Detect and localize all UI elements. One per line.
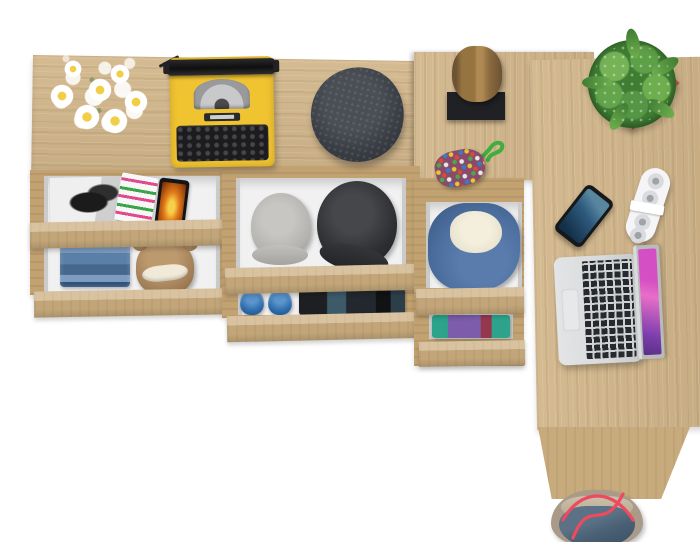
middle-drawer-2-front — [227, 312, 431, 343]
wooden-log-decor — [452, 46, 502, 102]
succulent-leaf — [582, 76, 612, 89]
daisy-flower — [110, 64, 130, 84]
laptop-keyboard — [582, 259, 637, 359]
white-flowers-bouquet — [40, 28, 158, 146]
black-cap — [317, 181, 397, 267]
succulent-leaf — [624, 28, 642, 60]
right-drawer-1-front — [416, 287, 524, 315]
blue-hoodie — [428, 203, 520, 291]
tote-bag — [551, 486, 643, 542]
typewriter-keyboard — [176, 124, 269, 162]
typewriter-type-basket — [193, 79, 250, 110]
hoodie-lining — [450, 211, 502, 253]
folded-jeans — [60, 243, 130, 287]
daisy-flower — [50, 84, 74, 108]
succulent-plant — [588, 40, 676, 128]
daisy-flower — [124, 90, 148, 114]
daisy-flower — [102, 108, 128, 134]
typewriter-platen — [167, 58, 275, 76]
daisy-flower — [74, 104, 100, 130]
middle-drawer-1-front — [225, 264, 423, 294]
right-drawer-2-front — [419, 340, 525, 367]
laptop-wallpaper — [638, 248, 662, 355]
bag-straps — [551, 486, 643, 542]
teddy-snout — [141, 263, 188, 284]
typewriter-knob-right — [273, 60, 279, 72]
scene-root — [0, 0, 700, 542]
laptop — [553, 244, 665, 365]
typewriter-label — [204, 113, 240, 122]
daisy-flower — [88, 78, 112, 102]
speaker-grille — [646, 171, 666, 191]
gray-cap — [251, 193, 311, 259]
teddy-bear — [136, 239, 194, 295]
yellow-typewriter — [169, 56, 275, 168]
speaker-hinge — [629, 200, 664, 216]
left-drawer-1-front — [30, 219, 222, 248]
laptop-trackpad — [561, 289, 580, 332]
daisy-flower — [64, 60, 82, 78]
typewriter-knob-left — [163, 62, 169, 74]
left-drawer-2-front — [34, 288, 224, 317]
laptop-base — [553, 253, 643, 365]
folded-clothes-stack — [432, 315, 510, 338]
gray-cap-brim — [252, 245, 308, 265]
